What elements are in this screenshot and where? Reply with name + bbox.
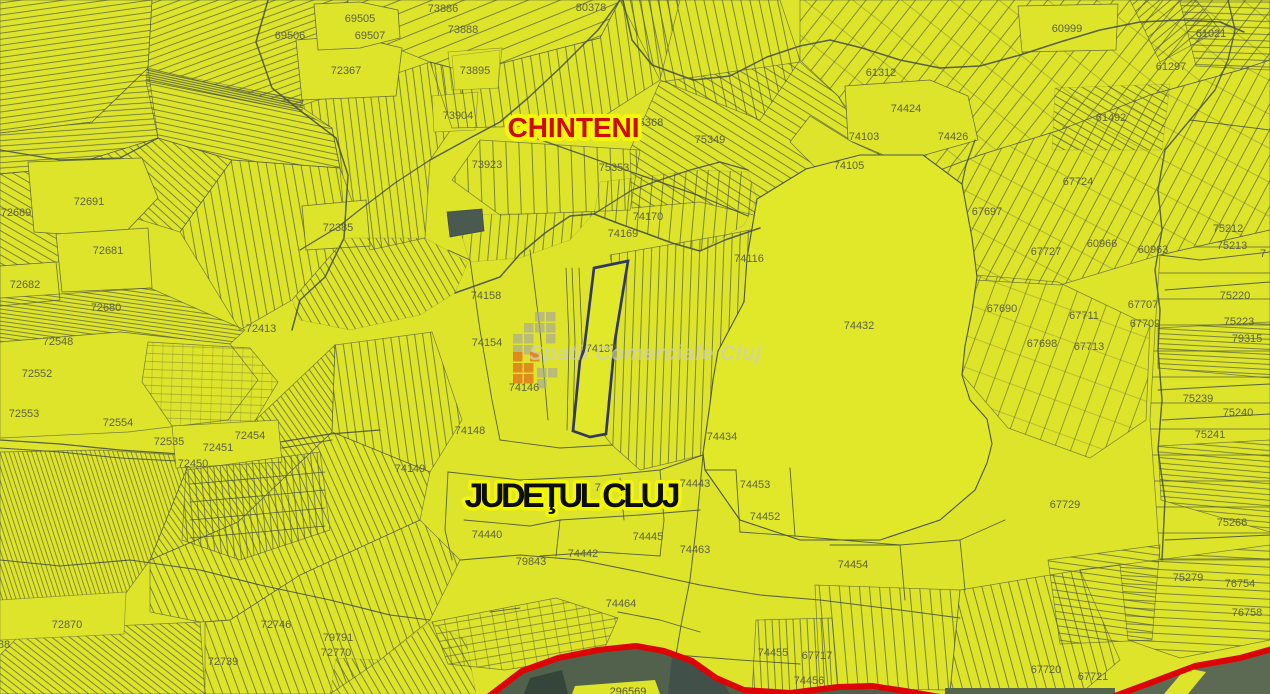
svg-text:72553: 72553: [9, 408, 40, 420]
svg-text:74148: 74148: [455, 425, 486, 437]
svg-text:76758: 76758: [1232, 607, 1263, 619]
svg-text:7: 7: [1260, 248, 1266, 260]
svg-text:74434: 74434: [707, 431, 738, 443]
svg-text:67713: 67713: [1074, 341, 1105, 353]
svg-text:60966: 60966: [1087, 238, 1118, 250]
svg-text:72548: 72548: [43, 336, 74, 348]
svg-text:75240: 75240: [1223, 407, 1254, 419]
svg-text:72367: 72367: [331, 65, 362, 77]
svg-text:75353: 75353: [599, 162, 630, 174]
svg-text:72680: 72680: [91, 302, 122, 314]
svg-text:73895: 73895: [460, 65, 491, 77]
svg-text:74464: 74464: [606, 598, 637, 610]
svg-text:67709: 67709: [1130, 318, 1161, 330]
svg-text:67711: 67711: [1069, 310, 1099, 322]
svg-text:74426: 74426: [938, 131, 969, 143]
svg-text:74146: 74146: [509, 382, 540, 394]
svg-text:72746: 72746: [261, 619, 292, 631]
svg-text:74149: 74149: [395, 463, 426, 475]
svg-text:79843: 79843: [516, 556, 547, 568]
svg-text:79315: 79315: [1232, 333, 1263, 345]
svg-text:75279: 75279: [1173, 572, 1204, 584]
svg-text:74170: 74170: [633, 211, 664, 223]
svg-text:74158: 74158: [471, 290, 502, 302]
svg-text:74169: 74169: [608, 228, 639, 240]
svg-text:60963: 60963: [1138, 244, 1169, 256]
svg-text:72552: 72552: [22, 368, 53, 380]
svg-text:72682: 72682: [10, 279, 41, 291]
svg-text:JUDEŢUL CLUJ: JUDEŢUL CLUJ: [465, 477, 681, 515]
svg-text:67727: 67727: [1031, 246, 1062, 258]
svg-text:61492: 61492: [1096, 112, 1127, 124]
svg-text:74455: 74455: [758, 647, 789, 659]
svg-text:72739: 72739: [208, 656, 239, 668]
svg-text:75220: 75220: [1220, 290, 1251, 302]
svg-text:61312: 61312: [866, 67, 897, 79]
svg-text:72413: 72413: [246, 323, 277, 335]
svg-text:74463: 74463: [680, 544, 711, 556]
svg-text:72450: 72450: [178, 458, 209, 470]
svg-text:72385: 72385: [323, 222, 354, 234]
svg-text:73904: 73904: [443, 110, 474, 122]
svg-text:74432: 74432: [844, 320, 875, 332]
svg-text:296569: 296569: [610, 686, 647, 694]
svg-text:73888: 73888: [448, 24, 479, 36]
svg-text:75349: 75349: [695, 134, 726, 146]
svg-text:69507: 69507: [355, 30, 386, 42]
svg-text:75266: 75266: [1217, 517, 1248, 529]
svg-text:67720: 67720: [1031, 664, 1062, 676]
svg-text:67690: 67690: [987, 303, 1018, 315]
svg-text:67724: 67724: [1063, 176, 1094, 188]
svg-text:75241: 75241: [1195, 429, 1226, 441]
svg-text:74424: 74424: [891, 103, 922, 115]
svg-text:74105: 74105: [834, 160, 865, 172]
svg-text:72691: 72691: [74, 196, 105, 208]
svg-text:88: 88: [0, 639, 10, 651]
svg-text:67707: 67707: [1128, 299, 1159, 311]
svg-text:76754: 76754: [1225, 578, 1256, 590]
svg-text:73886: 73886: [428, 3, 459, 15]
svg-text:CHINTENI: CHINTENI: [508, 112, 640, 143]
svg-text:61297: 61297: [1156, 61, 1187, 73]
svg-text:61021: 61021: [1196, 28, 1227, 40]
svg-text:5368: 5368: [639, 117, 663, 129]
svg-text:75223: 75223: [1224, 316, 1255, 328]
svg-text:74454: 74454: [838, 559, 869, 571]
svg-text:72451: 72451: [203, 442, 234, 454]
svg-text:67717: 67717: [802, 650, 833, 662]
svg-text:80378: 80378: [576, 2, 607, 14]
svg-text:67698: 67698: [1027, 338, 1058, 350]
svg-text:69505: 69505: [345, 13, 376, 25]
svg-text:74453: 74453: [740, 479, 771, 491]
svg-text:72454: 72454: [235, 430, 266, 442]
svg-text:74154: 74154: [472, 337, 503, 349]
svg-text:74443: 74443: [680, 478, 711, 490]
svg-text:69506: 69506: [275, 30, 306, 42]
svg-text:72681: 72681: [93, 245, 124, 257]
svg-text:74442: 74442: [568, 548, 599, 560]
svg-text:72554: 72554: [103, 417, 134, 429]
svg-text:74452: 74452: [750, 511, 781, 523]
svg-text:74440: 74440: [472, 529, 503, 541]
svg-text:73923: 73923: [472, 159, 503, 171]
svg-text:72770: 72770: [321, 647, 352, 659]
svg-text:75212: 75212: [1213, 223, 1244, 235]
svg-text:72689: 72689: [1, 207, 32, 219]
svg-text:74456: 74456: [794, 675, 825, 687]
svg-text:74103: 74103: [849, 131, 880, 143]
svg-text:72870: 72870: [52, 619, 83, 631]
svg-text:67729: 67729: [1050, 499, 1081, 511]
svg-text:74116: 74116: [734, 253, 764, 265]
svg-text:79791: 79791: [323, 632, 354, 644]
svg-text:72535: 72535: [154, 436, 185, 448]
svg-text:75239: 75239: [1183, 393, 1214, 405]
svg-text:60999: 60999: [1052, 23, 1083, 35]
svg-text:67697: 67697: [972, 206, 1003, 218]
svg-text:75213: 75213: [1217, 240, 1248, 252]
svg-text:Spatii Comerciale Cluj: Spatii Comerciale Cluj: [529, 342, 762, 365]
svg-text:67721: 67721: [1078, 671, 1109, 683]
svg-text:74445: 74445: [633, 531, 664, 543]
